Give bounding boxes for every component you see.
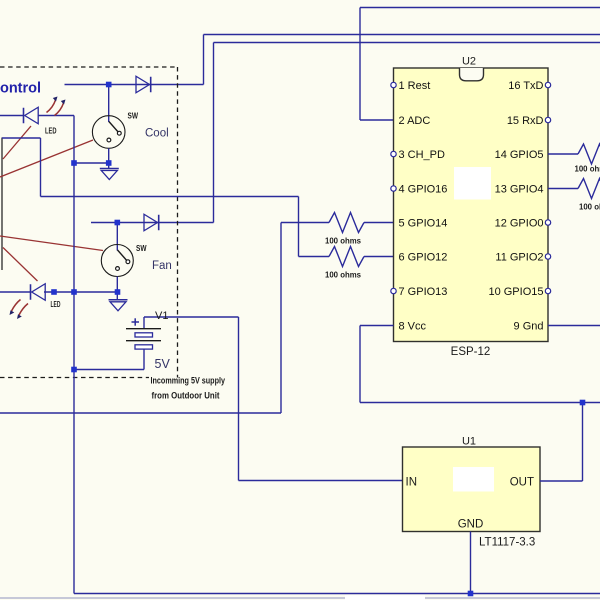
svg-text:5V: 5V <box>155 357 171 371</box>
svg-text:V1: V1 <box>155 310 168 322</box>
svg-text:from Outdoor Unit: from Outdoor Unit <box>152 391 220 401</box>
svg-text:14 GPIO5: 14 GPIO5 <box>495 149 544 161</box>
svg-text:LED: LED <box>45 127 57 136</box>
svg-text:6 GPIO12: 6 GPIO12 <box>399 252 448 264</box>
svg-text:2 ADC: 2 ADC <box>399 115 431 127</box>
svg-text:1 Rest: 1 Rest <box>399 80 431 92</box>
svg-text:8 Vcc: 8 Vcc <box>399 321 427 333</box>
svg-text:4 GPIO16: 4 GPIO16 <box>399 184 448 196</box>
svg-text:GND: GND <box>458 519 484 531</box>
svg-text:Fan: Fan <box>152 260 172 272</box>
svg-text:15 RxD: 15 RxD <box>507 115 544 127</box>
svg-text:Incomming 5V supply: Incomming 5V supply <box>151 376 226 386</box>
svg-text:U2: U2 <box>462 56 476 68</box>
svg-text:100 ohms: 100 ohms <box>575 165 600 174</box>
svg-text:U1: U1 <box>462 436 476 448</box>
svg-text:5 GPIO14: 5 GPIO14 <box>399 218 448 230</box>
svg-text:11 GPIO2: 11 GPIO2 <box>495 252 543 264</box>
svg-text:12 GPIO0: 12 GPIO0 <box>495 218 544 230</box>
svg-text:OUT: OUT <box>510 477 534 489</box>
svg-text:9 Gnd: 9 Gnd <box>514 321 544 333</box>
svg-text:100 ohms: 100 ohms <box>325 237 362 246</box>
svg-text:3 CH_PD: 3 CH_PD <box>399 149 446 161</box>
svg-text:Control: Control <box>0 81 41 97</box>
svg-text:13 GPIO4: 13 GPIO4 <box>495 184 544 196</box>
svg-text:SW: SW <box>128 112 139 121</box>
svg-text:LT1117-3.3: LT1117-3.3 <box>479 537 535 549</box>
svg-text:100 ohms: 100 ohms <box>579 203 600 212</box>
svg-text:10 GPIO15: 10 GPIO15 <box>488 286 543 298</box>
svg-text:LED: LED <box>51 300 61 309</box>
svg-text:100 ohms: 100 ohms <box>325 271 362 280</box>
svg-text:ESP-12: ESP-12 <box>451 346 491 358</box>
svg-text:Cool: Cool <box>145 128 169 140</box>
svg-text:IN: IN <box>406 477 418 489</box>
svg-text:SW: SW <box>136 244 147 253</box>
svg-text:7 GPIO13: 7 GPIO13 <box>399 286 448 298</box>
svg-text:16 TxD: 16 TxD <box>508 80 543 92</box>
